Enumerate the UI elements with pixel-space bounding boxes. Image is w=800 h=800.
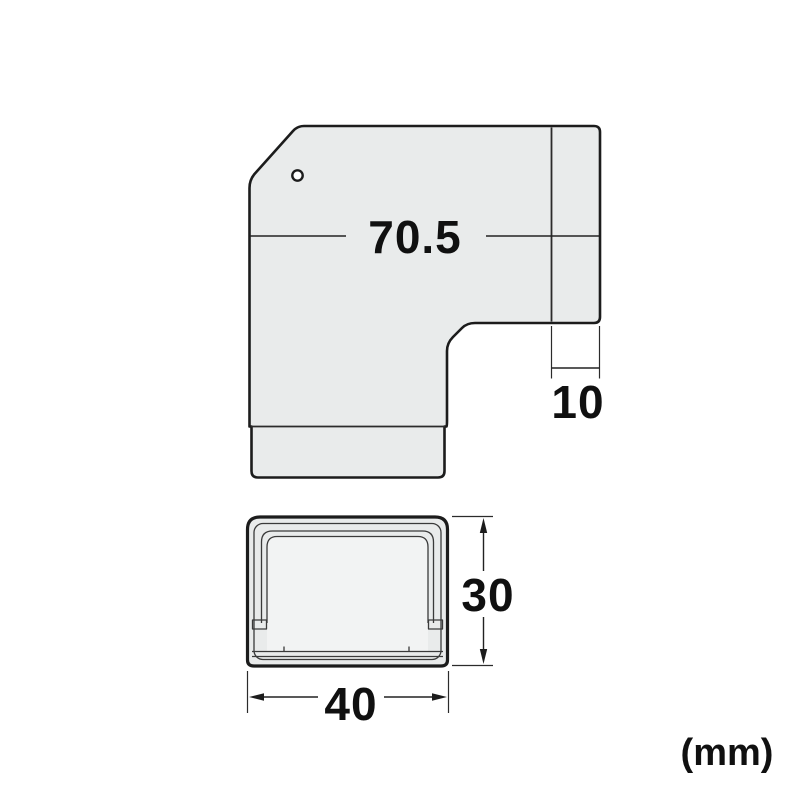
- dim-30-arrow-down: [480, 649, 487, 664]
- dim-30-arrow-up: [480, 518, 487, 533]
- dim-40-label: 40: [324, 678, 377, 730]
- dim-40-arrow-right: [432, 693, 447, 700]
- dimension-30: 30: [452, 517, 515, 666]
- section-inner-panel: [267, 537, 428, 652]
- unit-label: (mm): [681, 732, 774, 774]
- duct-corner-dimension-diagram: 70.5 10: [0, 0, 800, 800]
- elbow-top-view: 70.5 10: [250, 126, 605, 478]
- dimension-40: 40: [248, 671, 449, 730]
- dim-40-arrow-left: [249, 693, 264, 700]
- dim-70-5-label: 70.5: [368, 211, 462, 263]
- duct-section-view: 30 40: [248, 517, 515, 731]
- mounting-hole: [292, 170, 302, 180]
- dimension-10: 10: [551, 326, 604, 428]
- dim-30-label: 30: [461, 569, 514, 621]
- dim-10-label: 10: [551, 376, 604, 428]
- technical-drawing-page: 70.5 10: [0, 0, 800, 800]
